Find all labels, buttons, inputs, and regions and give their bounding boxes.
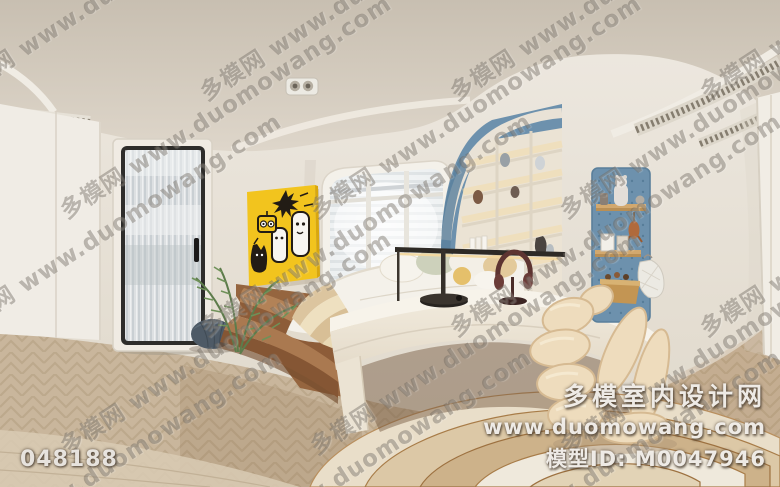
glass-door <box>113 139 212 355</box>
left-wall-panel <box>0 104 100 340</box>
brand-block: 多模室内设计网 www.duomowang.com 模型ID: M0047946 <box>483 383 766 472</box>
brand-model-id: 模型ID: M0047946 <box>483 446 766 472</box>
brand-site-name: 多模室内设计网 <box>483 383 766 410</box>
panorama-image: 多模网 www.duomowang.com多模网 www.duomowang.c… <box>0 0 780 487</box>
bear-figurine <box>614 175 628 206</box>
ceiling-spotlight <box>286 78 318 95</box>
image-id: 048188 <box>20 447 118 472</box>
door-handle <box>194 238 199 262</box>
wall-artwork <box>247 185 321 291</box>
brand-site-url: www.duomowang.com <box>483 414 766 440</box>
